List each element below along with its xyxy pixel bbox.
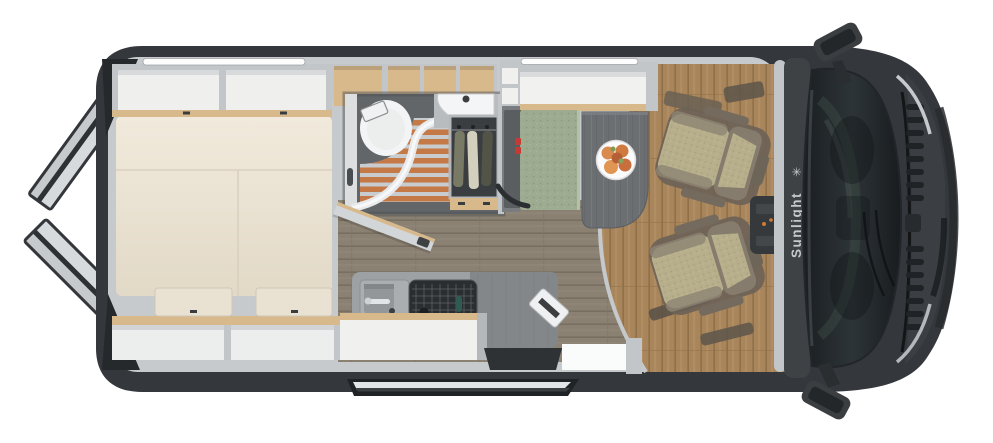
fruit-plate (597, 141, 636, 180)
camper-floorplan: Sunlight ✳ (0, 0, 993, 443)
wardrobe-step (450, 198, 500, 210)
overhead-locker-dinette (518, 62, 658, 111)
entry-step (347, 379, 579, 396)
handle (190, 310, 197, 313)
handle (291, 310, 298, 313)
rear-bed-mattress (116, 116, 332, 296)
led-strip (521, 59, 638, 65)
dinette-bench (520, 110, 580, 210)
windshield (803, 69, 901, 367)
entry-doorway (562, 344, 628, 370)
front-badge (905, 214, 921, 232)
bed-bench-top (112, 316, 345, 325)
kitchen-cabinet (340, 313, 487, 360)
overhead-locker-bed (112, 64, 332, 117)
underbed-shelf-divider (334, 325, 341, 360)
brand-wordmark: Sunlight (789, 192, 804, 258)
underbed-shelf-divider (224, 325, 231, 360)
basin-faucet (463, 96, 470, 103)
shower-mixer (347, 168, 353, 186)
hob (409, 280, 477, 318)
door-jamb (626, 338, 642, 374)
bathroom (345, 94, 504, 214)
bench-edge (577, 110, 580, 210)
entry-sill (484, 348, 562, 370)
kitchen-sink (360, 280, 409, 318)
brand-logo-icon: ✳ (790, 167, 804, 177)
wardrobe (450, 116, 498, 198)
led-strip (143, 59, 305, 66)
table-edge (582, 112, 648, 115)
